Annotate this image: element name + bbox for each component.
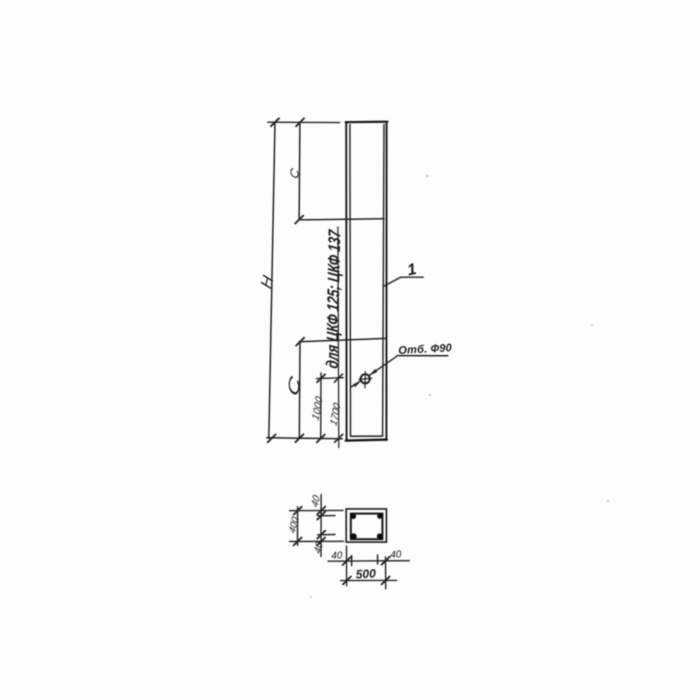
svg-text:500: 500 bbox=[355, 566, 376, 581]
svg-text:40: 40 bbox=[331, 550, 343, 562]
svg-text:40: 40 bbox=[390, 549, 402, 561]
svg-text:для ЦКФ 125; ЦКФ 137: для ЦКФ 125; ЦКФ 137 bbox=[323, 228, 344, 369]
